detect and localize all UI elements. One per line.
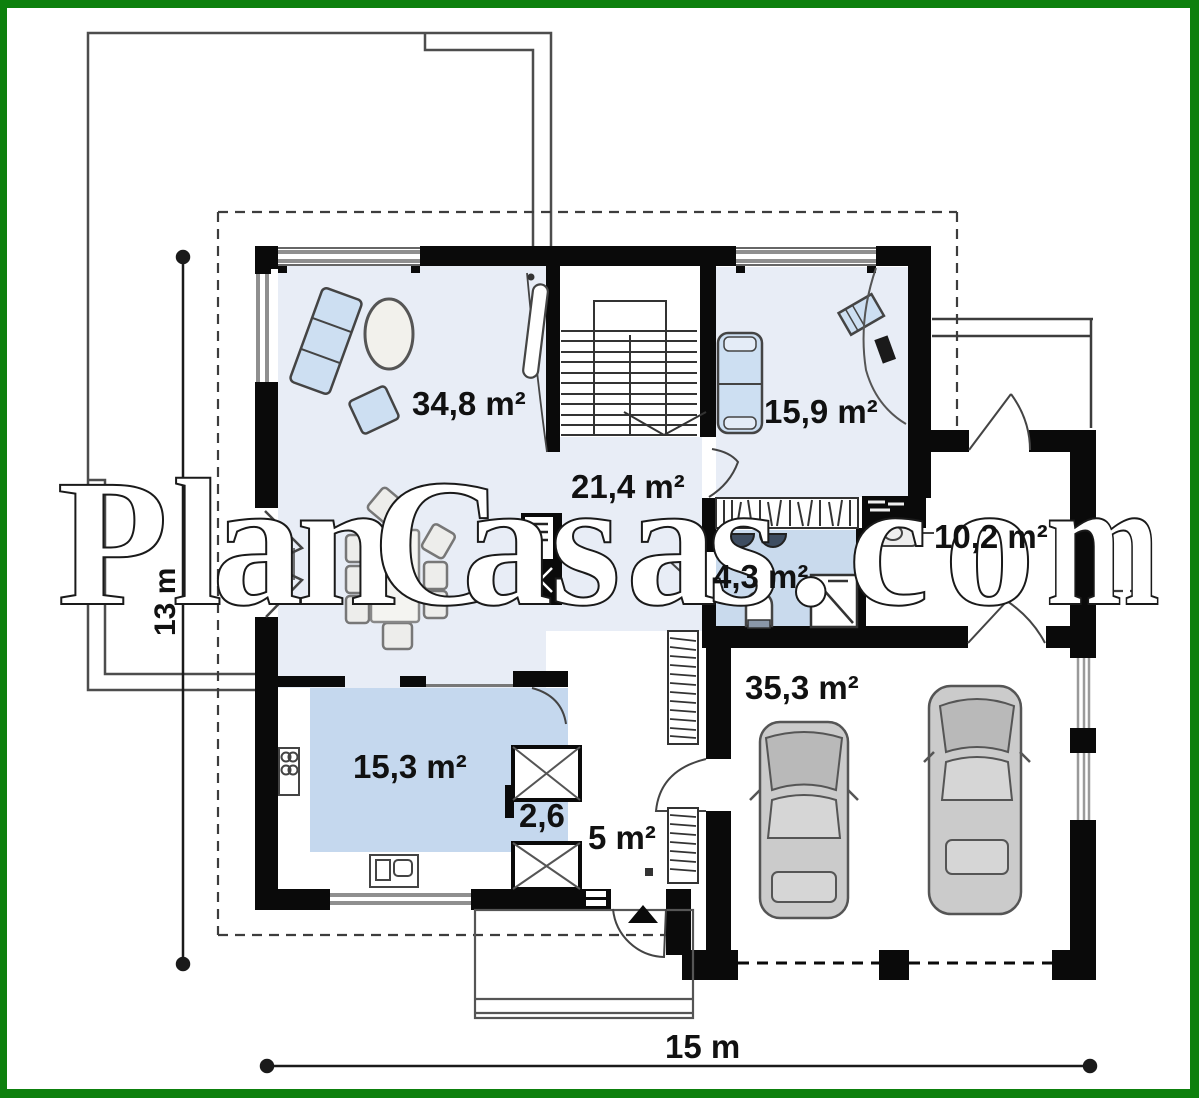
svg-text:34,8 m²: 34,8 m² <box>412 385 526 422</box>
svg-text:m: m <box>1046 443 1160 644</box>
svg-text:PlanCasas.co: PlanCasas.co <box>57 443 1035 644</box>
svg-text:15 m: 15 m <box>665 1028 740 1065</box>
svg-text:5 m²: 5 m² <box>588 819 656 856</box>
svg-text:21,4 m²: 21,4 m² <box>571 468 685 505</box>
svg-text:10,2 m²: 10,2 m² <box>934 518 1048 555</box>
svg-text:15,3 m²: 15,3 m² <box>353 748 467 785</box>
svg-text:13 m: 13 m <box>149 568 182 636</box>
svg-text:35,3 m²: 35,3 m² <box>745 669 859 706</box>
svg-text:2,6: 2,6 <box>519 797 565 834</box>
svg-text:15,9 m²: 15,9 m² <box>764 393 878 430</box>
svg-text:4,3 m²: 4,3 m² <box>713 558 808 595</box>
